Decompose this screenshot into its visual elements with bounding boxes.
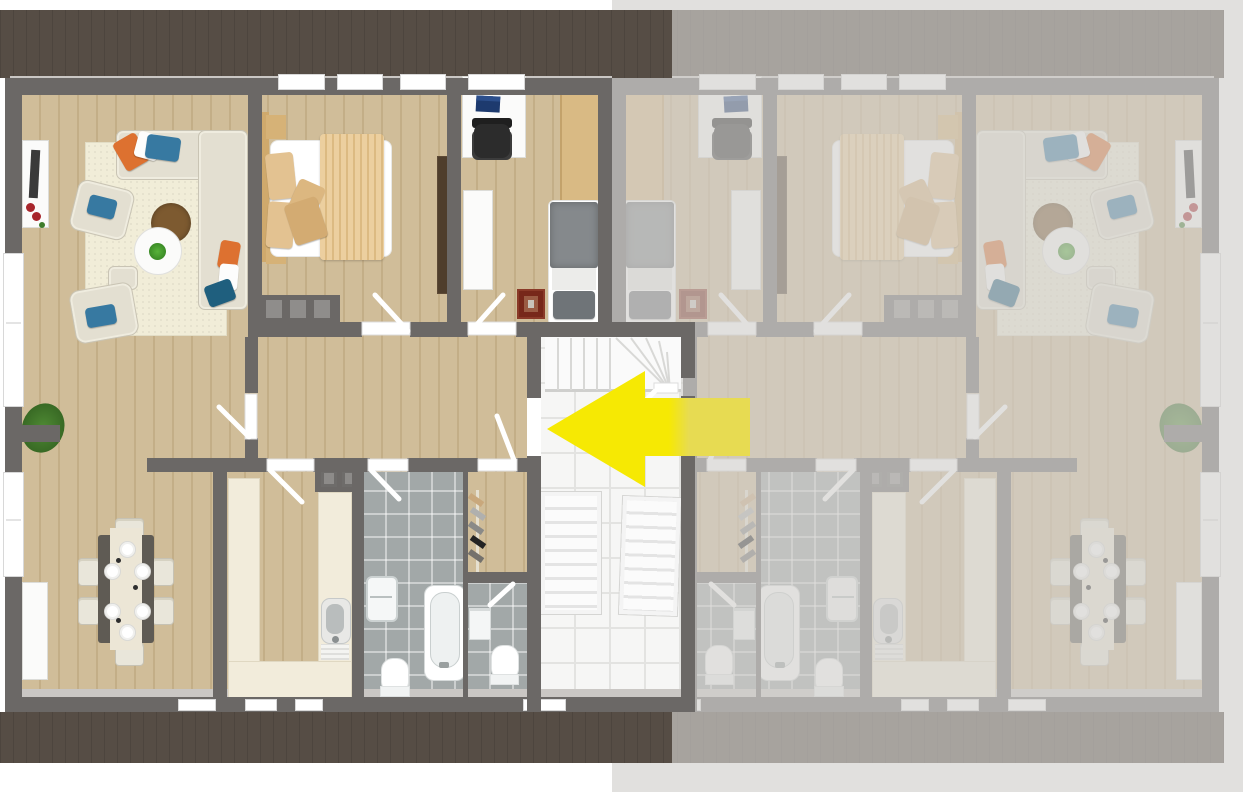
entrance-left-arrow-icon: [547, 371, 750, 487]
floorplan-canvas: [0, 0, 1243, 792]
annotation-layer: [0, 0, 1243, 792]
